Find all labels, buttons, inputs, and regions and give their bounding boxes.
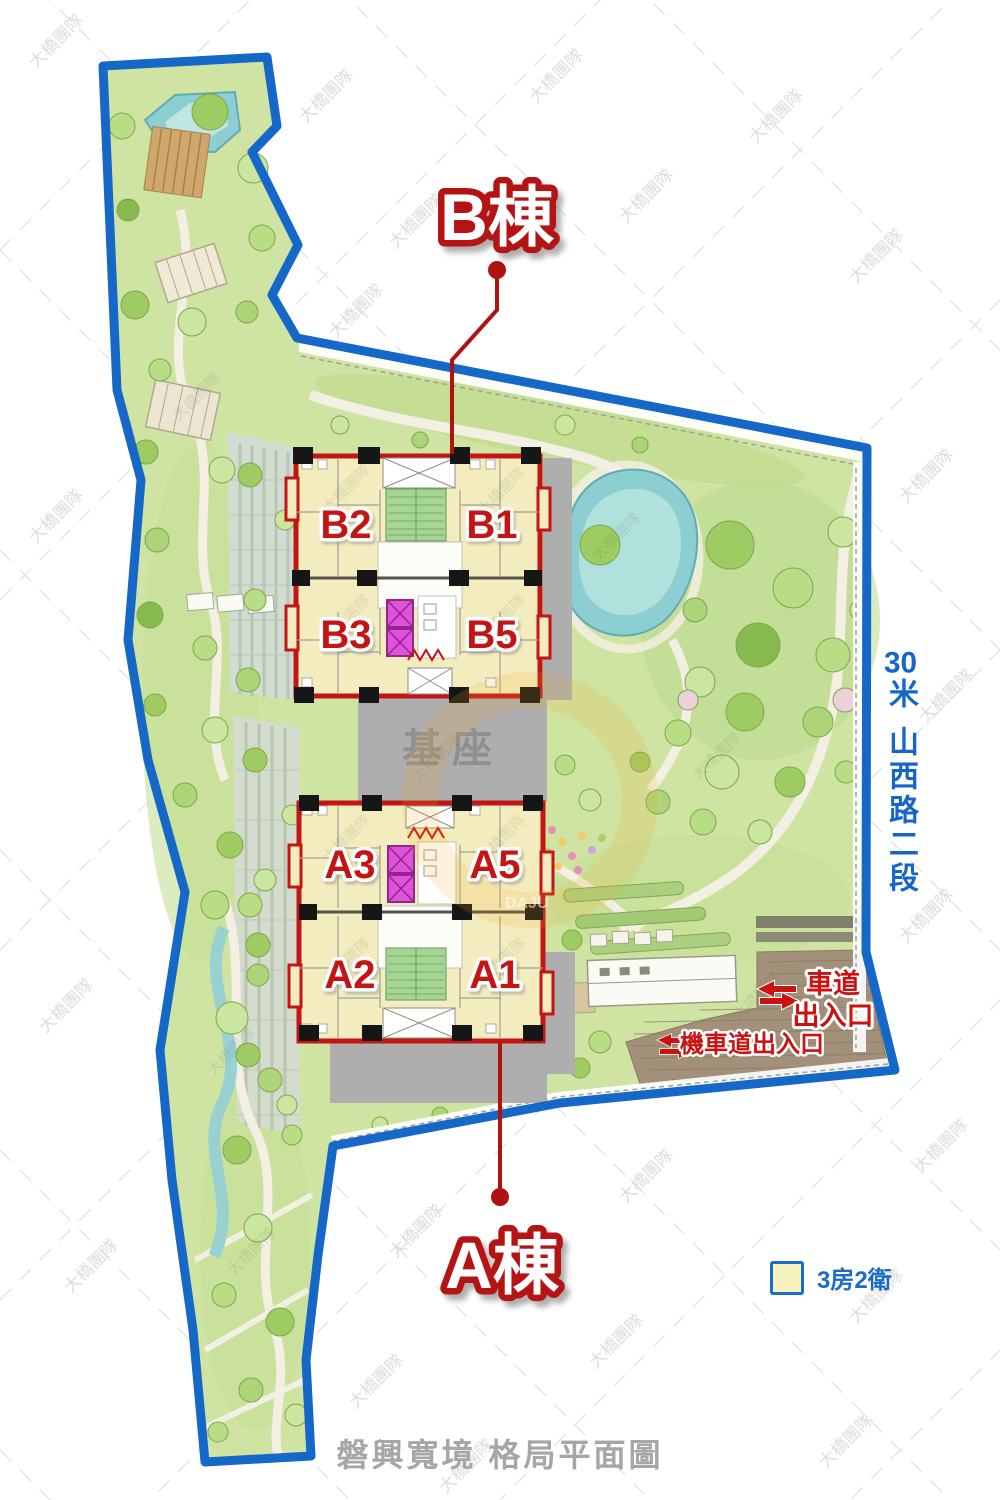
svg-text:大橋團隊: 大橋團隊 <box>845 225 907 287</box>
unit-label-b3: B3 <box>320 613 371 657</box>
svg-text:大橋團隊: 大橋團隊 <box>295 65 357 127</box>
svg-text:大橋團隊: 大橋團隊 <box>35 975 97 1037</box>
svg-text:大橋團隊: 大橋團隊 <box>615 1145 677 1207</box>
unit-label-a1: A1 <box>469 953 520 997</box>
svg-text:大橋團隊: 大橋團隊 <box>25 485 87 547</box>
elevators-a <box>388 846 414 902</box>
svg-text:大橋團隊: 大橋團隊 <box>895 445 957 507</box>
svg-text:大橋團隊: 大橋團隊 <box>345 1350 407 1412</box>
unit-label-a3: A3 <box>324 843 375 887</box>
unit-label-a2: A2 <box>324 953 375 997</box>
site-plan-poster: 大橋團隊 大橋團隊 大橋團隊 大橋團隊 大橋團隊 大橋團隊 大橋團隊 大橋團隊 … <box>0 0 1000 1500</box>
svg-text:大橋團隊: 大橋團隊 <box>745 85 807 147</box>
plan-title: 磐興寬境 格局平面圖 <box>0 1430 1000 1476</box>
wood-deck <box>144 126 210 197</box>
unit-label-b1: B1 <box>466 503 517 547</box>
svg-text:大橋團隊: 大橋團隊 <box>910 1115 972 1177</box>
legend-unit-type-label: 3房2衛 <box>817 1260 892 1295</box>
legend-unit-swatch <box>770 1261 804 1295</box>
building-b-label: B棟 <box>440 180 555 254</box>
stairs-b <box>386 489 446 541</box>
svg-text:大橋團隊: 大橋團隊 <box>60 1235 122 1297</box>
svg-text:大橋團隊: 大橋團隊 <box>525 45 587 107</box>
watermark-logo-text: DAJU <box>505 895 549 912</box>
svg-text:機車道出入口: 機車道出入口 <box>680 1030 824 1058</box>
stairs-a <box>386 948 446 1000</box>
svg-text:大橋團隊: 大橋團隊 <box>385 1200 447 1262</box>
road-distance-unit: 米 <box>884 678 917 712</box>
unit-label-b5: B5 <box>466 613 517 657</box>
svg-text:車道: 車道 <box>806 968 860 999</box>
unit-label-a5: A5 <box>469 843 520 887</box>
svg-text:出入口: 出入口 <box>793 1001 874 1031</box>
svg-text:大橋團隊: 大橋團隊 <box>915 665 977 727</box>
svg-text:大橋團隊: 大橋團隊 <box>385 190 447 252</box>
unit-label-b2: B2 <box>320 503 371 547</box>
svg-text:大橋團隊: 大橋團隊 <box>325 280 387 342</box>
building-a-label: A棟 <box>445 1228 560 1302</box>
road-label: 30米山西路二段 <box>884 648 917 896</box>
svg-text:大橋團隊: 大橋團隊 <box>25 10 87 72</box>
road-distance: 30 <box>884 648 917 678</box>
elevators-b <box>387 600 413 656</box>
legend: 3房2衛 <box>770 1260 892 1295</box>
motorcycle-entrance-label: 機車道出入口 <box>658 1030 824 1058</box>
svg-text:大橋團隊: 大橋團隊 <box>615 165 677 227</box>
road-street-name: 山西路二段 <box>884 726 917 896</box>
